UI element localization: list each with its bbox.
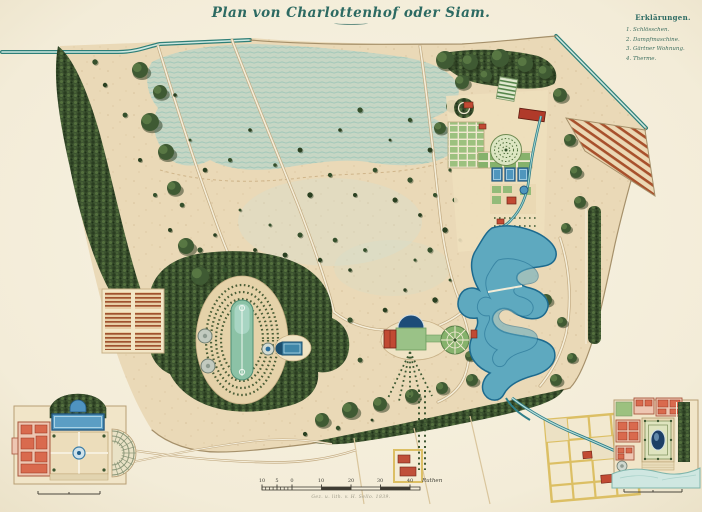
legend-item-1: 1. Schlösschen. bbox=[626, 26, 700, 36]
map-sheet: Plan von Charlottenhof oder Siam. Erklär… bbox=[0, 0, 702, 512]
legend-item-3: 3. Gärtner Wohnung. bbox=[626, 45, 700, 55]
scale-tick: 30 bbox=[377, 478, 383, 484]
inset-baths-detail bbox=[612, 398, 700, 492]
credit-line: Gez. u. lith. v. H. Sello. 1839. bbox=[0, 495, 702, 500]
scale-tick: 5 bbox=[275, 478, 278, 484]
inset-palace-detail bbox=[12, 394, 136, 494]
legend-heading: Erklärungen. bbox=[626, 13, 700, 22]
tree-allee-east bbox=[588, 206, 601, 344]
legend: Erklärungen. 1. Schlösschen. 2. Dampfmas… bbox=[626, 13, 700, 65]
scale-tick: 40 bbox=[407, 478, 413, 484]
map-canvas bbox=[0, 0, 702, 512]
map-title: Plan von Charlottenhof oder Siam. bbox=[0, 5, 702, 25]
scale-tick: 10 bbox=[318, 478, 324, 484]
greenhouse-frames bbox=[496, 77, 518, 102]
nursery-gardens bbox=[446, 77, 548, 252]
scale-tick: 0 bbox=[290, 478, 293, 484]
garden-building bbox=[507, 197, 516, 204]
scale-tick-labels: 10 5 0 10 20 30 40 Ruthen bbox=[250, 478, 450, 490]
scale-unit-label: Ruthen bbox=[422, 478, 442, 484]
legend-item-2: 2. Dampfmaschine. bbox=[626, 36, 700, 46]
legend-item-4: 4. Therme. bbox=[626, 55, 700, 65]
scale-tick: 20 bbox=[348, 478, 354, 484]
scale-tick: 10 bbox=[259, 478, 265, 484]
nursery-plot-west bbox=[102, 289, 164, 353]
garden-basins bbox=[492, 168, 528, 181]
